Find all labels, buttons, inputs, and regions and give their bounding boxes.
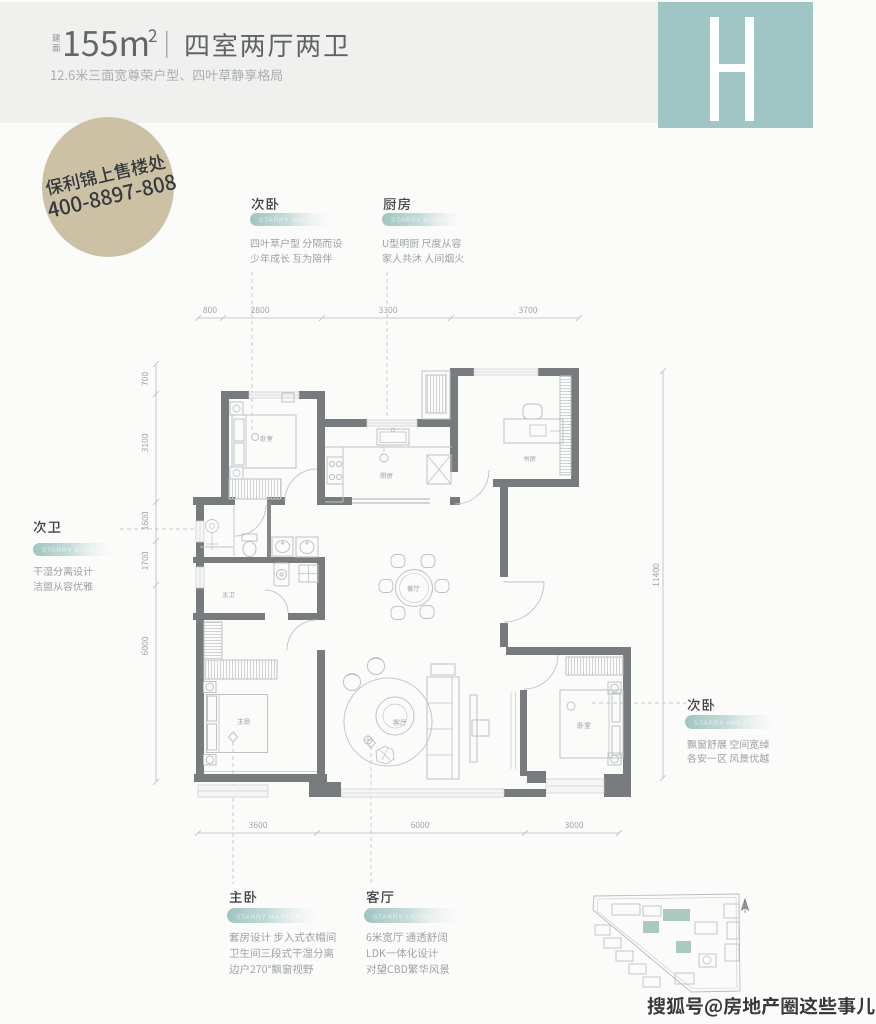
svg-text:STARRY INN C1: STARRY INN C1 [259,217,318,224]
svg-text:STARRY KITCHEN: STARRY KITCHEN [391,217,458,224]
svg-text:STARRY INN C2: STARRY INN C2 [694,720,753,727]
svg-text:STARRY LIVING: STARRY LIVING [373,914,432,921]
svg-text:STARRY BATH C2: STARRY BATH C2 [42,547,108,554]
svg-text:STARRY MASTER: STARRY MASTER [236,914,301,921]
